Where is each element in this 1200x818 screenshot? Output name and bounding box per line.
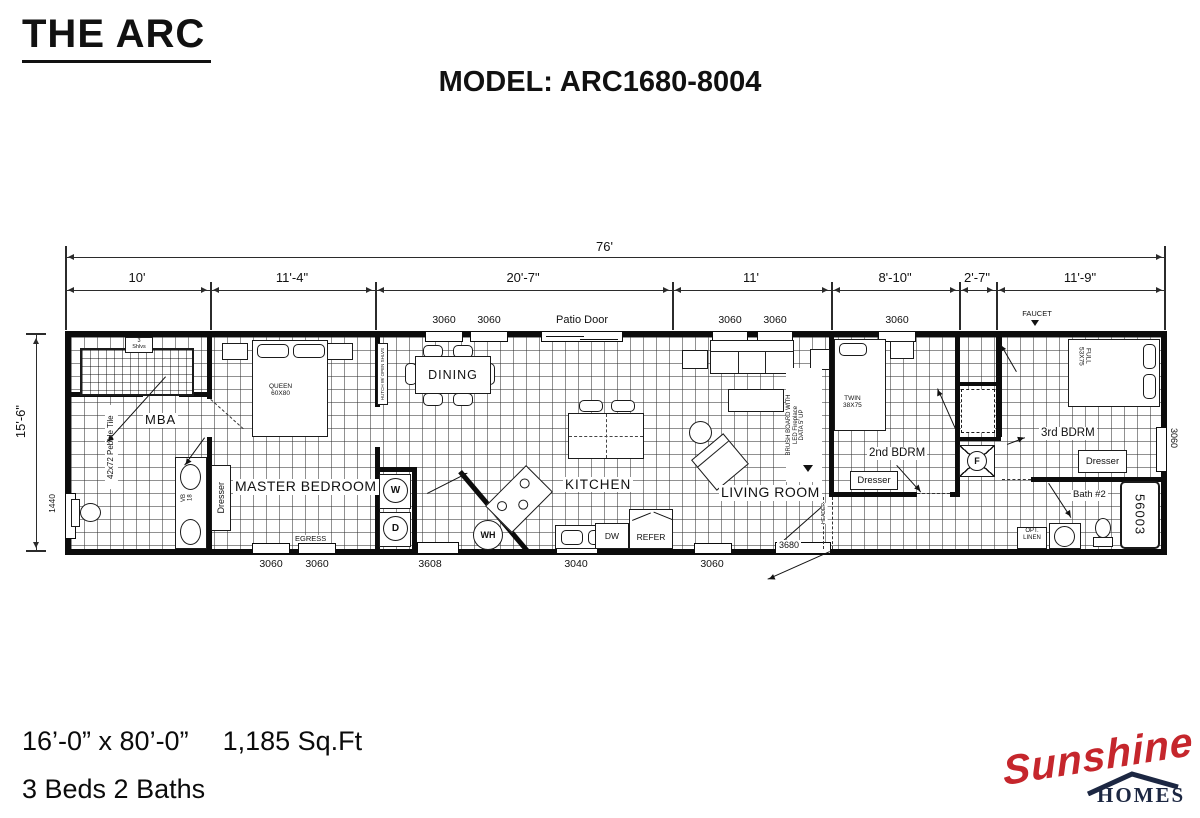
window-label-bottom-1: 3060 (259, 558, 282, 570)
room-label-master: MASTER BEDROOM (233, 479, 379, 495)
dim-seg-3 (375, 290, 672, 291)
leader-arrow (1048, 483, 1071, 518)
dim-tick (996, 282, 998, 330)
pillow (1143, 344, 1156, 369)
dresser: Dresser (211, 465, 231, 531)
back-door (417, 542, 459, 554)
window (1156, 427, 1167, 472)
patio-door-label: Patio Door (556, 314, 608, 326)
leader-arrow (1007, 437, 1025, 445)
toilet-tank (71, 499, 80, 527)
room-label-dining: DINING (428, 368, 478, 382)
window-label-bottom-3: 3040 (564, 558, 587, 570)
bed-label: FULL 53X75 (1075, 347, 1094, 366)
leader-arrow (1000, 344, 1017, 372)
dim-label-6: 2'-7" (964, 270, 990, 285)
toilet (80, 503, 101, 522)
entry-arrow (767, 551, 830, 580)
dim-label-height: 15'-6" (13, 405, 28, 438)
dim-seg-1 (65, 290, 210, 291)
pillow (257, 344, 289, 358)
dim-tick (26, 550, 46, 552)
shower (80, 348, 194, 396)
end-table (682, 350, 708, 369)
pillow (293, 344, 325, 358)
window-label-top-2: 3060 (477, 314, 500, 326)
door-label-3680: 3680 (777, 540, 801, 550)
faucet-marker-icon (1031, 320, 1039, 330)
end-table (810, 349, 830, 370)
dim-line-height (36, 335, 37, 551)
dim-seg-4 (672, 290, 831, 291)
window-label-top-4: 3060 (763, 314, 786, 326)
dim-seg-2 (210, 290, 375, 291)
window-label-left-1440: 1440 (47, 494, 57, 513)
hutch: HUTCH W/ OPEN SHLVS (377, 343, 388, 405)
window-label-bottom-4: 3060 (700, 558, 723, 570)
bed-label: TWIN 38X75 (841, 395, 864, 410)
fireplace-marker-icon (803, 465, 813, 477)
pillow (1143, 374, 1156, 399)
island (568, 413, 644, 459)
dim-line-overall (65, 257, 1165, 258)
window (252, 543, 290, 554)
window-label-bottom-2: 3060 (305, 558, 328, 570)
door-swing (210, 399, 243, 429)
window-label-top-3: 3060 (718, 314, 741, 326)
door-label-3608: 3608 (418, 558, 441, 570)
dryer: D (383, 516, 408, 541)
dim-seg-7 (996, 290, 1165, 291)
floorplan: 3 Shlvs 42x72 Pebble Tile MBA VB 18 QUEE… (65, 331, 1167, 555)
hutch-label: HUTCH W/ OPEN SHLVS (380, 348, 385, 400)
bed-label: QUEEN 60X80 (267, 383, 294, 398)
window (470, 331, 508, 342)
header-note: HEADER (822, 503, 828, 524)
window-label-right-3060: 3060 (1169, 428, 1179, 448)
refrigerator-label: REFER (637, 532, 666, 542)
opt-linen: OPT. LINEN (1017, 527, 1047, 549)
nightstand (327, 343, 353, 360)
dim-seg-6 (959, 290, 996, 291)
home-size: 16’-0” x 80’-0” (22, 726, 189, 756)
faucet-label: FAUCET (1022, 309, 1052, 318)
logo-homes: HOMES (1097, 783, 1185, 808)
washer: W (383, 478, 408, 503)
tile-note: 42x72 Pebble Tile (105, 405, 118, 489)
dresser-label: Dresser (1086, 456, 1119, 467)
room-label-living: LIVING ROOM (719, 485, 822, 501)
wall (829, 492, 917, 497)
wall (955, 437, 1001, 441)
door-opening (1002, 479, 1031, 480)
sofa (710, 340, 794, 374)
bathtub: 56003 (1120, 481, 1160, 549)
dim-label-3: 20'-7" (506, 270, 539, 285)
patio-door (541, 331, 623, 342)
dim-label-overall: 76' (596, 239, 613, 254)
shelves-closet: 3 Shlvs (125, 337, 153, 353)
stool (579, 400, 603, 412)
room-label-bdrm3: 3rd BDRM (1039, 427, 1097, 440)
dim-tick (210, 282, 212, 330)
dim-tick (26, 333, 46, 335)
vanity-label: VB 18 (179, 494, 196, 502)
coffee-table (728, 389, 784, 412)
wall (375, 467, 417, 472)
leader-arrow (896, 465, 921, 492)
nightstand (222, 343, 248, 360)
dim-tick (959, 282, 961, 330)
refrigerator: REFER (629, 509, 673, 549)
footer-size-line: 16’-0” x 80’-0”1,185 Sq.Ft (22, 726, 362, 757)
lavatory-sink (1054, 526, 1075, 547)
leader-arrow (427, 473, 468, 494)
leader-arrow (937, 388, 956, 429)
dim-seg-5 (831, 290, 959, 291)
window (694, 543, 732, 554)
window-label-top-1: 3060 (432, 314, 455, 326)
room-label-mba: MBA (143, 413, 178, 428)
home-sqft: 1,185 Sq.Ft (223, 726, 363, 756)
round-table (689, 421, 712, 444)
wall (412, 467, 417, 549)
dim-label-1: 10' (129, 270, 146, 285)
dim-tick (831, 282, 833, 330)
chair (423, 393, 443, 406)
nightstand (890, 341, 914, 359)
window (298, 543, 336, 554)
dim-label-7: 11'-9" (1064, 270, 1096, 285)
water-heater: WH (473, 520, 503, 550)
egress-label: EGRESS (293, 535, 328, 543)
wall (950, 492, 960, 497)
sink (180, 519, 201, 545)
dishwasher: DW (605, 531, 619, 541)
wall (207, 337, 212, 399)
dresser-label: Dresser (216, 482, 226, 514)
door-swing (779, 505, 824, 545)
room-label-bath2: Bath #2 (1071, 490, 1108, 501)
wall (955, 382, 1001, 386)
wall (996, 337, 1002, 437)
tub-model: 56003 (1133, 494, 1148, 535)
chair (453, 393, 473, 406)
linen-closet (961, 389, 995, 433)
dim-label-4: 11' (743, 270, 759, 285)
toilet (1095, 518, 1111, 538)
pillow (839, 343, 867, 356)
dim-label-2: 11'-4" (276, 270, 308, 285)
room-label-bdrm2: 2nd BDRM (867, 447, 927, 460)
stool (611, 400, 635, 412)
window (425, 331, 463, 342)
window-label-top-5: 3060 (885, 314, 908, 326)
page-title: THE ARC (22, 12, 211, 63)
room-label-kitchen: KITCHEN (563, 477, 633, 492)
dim-tick (672, 282, 674, 330)
beds-baths: 3 Beds 2 Baths (22, 774, 205, 805)
sink (180, 464, 201, 490)
dresser-label: Dresser (857, 475, 890, 486)
model-number: MODEL: ARC1680-8004 (0, 66, 1200, 99)
furnace: F (967, 451, 987, 471)
dim-tick (375, 282, 377, 330)
floorplan-page: THE ARC MODEL: ARC1680-8004 76' 10' 11'-… (0, 0, 1200, 818)
toilet-tank (1093, 537, 1113, 547)
header-line (832, 497, 833, 549)
dim-label-5: 8'-10" (878, 270, 911, 285)
